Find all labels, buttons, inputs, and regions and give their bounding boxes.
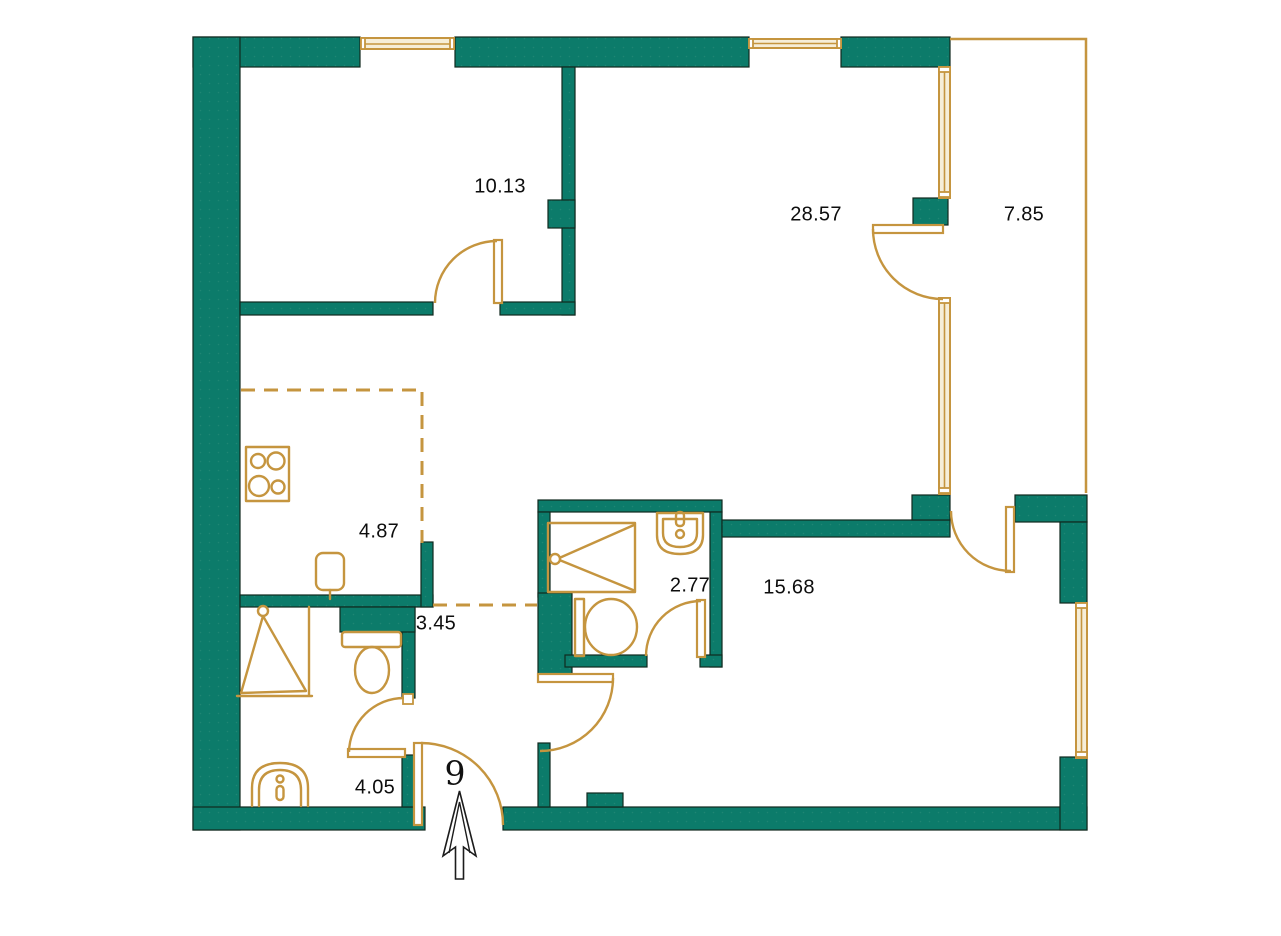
- door-shower-room: [348, 694, 413, 757]
- room-area-label-balcony: 7.85: [1004, 204, 1044, 227]
- floor-plan-canvas: [0, 0, 1281, 936]
- window-hall: [1076, 603, 1087, 758]
- toilet-icon: [342, 632, 401, 693]
- glass-partition-balcony-upper: [939, 67, 950, 198]
- toilet-icon: [575, 599, 637, 656]
- balcony-outline: [950, 39, 1086, 493]
- window-bedroom: [361, 38, 454, 49]
- door-corridor-to-hall: [538, 674, 613, 751]
- room-area-label-bedroom: 10.13: [474, 176, 526, 199]
- shower-icon: [237, 606, 312, 696]
- room-area-label-kitchen: 4.87: [359, 521, 399, 544]
- walls: [193, 37, 1087, 830]
- door-bathroom: [646, 600, 705, 657]
- door-balcony: [873, 225, 943, 299]
- room-area-label-living-room: 28.57: [790, 204, 842, 227]
- window-living-room: [749, 39, 841, 48]
- shower-icon: [548, 523, 635, 592]
- room-area-label-shower-room: 4.05: [355, 777, 395, 800]
- washbasin-icon: [657, 512, 703, 554]
- floor-plan: 10.13 28.57 7.85 4.87 3.45 2.77 15.68 4.…: [0, 0, 1281, 936]
- kitchen-sink-icon: [316, 553, 344, 599]
- glass-partition-balcony-lower: [939, 298, 950, 494]
- entrance-unit-number: 9: [445, 754, 466, 793]
- room-area-label-bathroom: 2.77: [670, 575, 710, 598]
- door-bedroom: [435, 240, 502, 303]
- room-area-label-corridor: 3.45: [416, 613, 456, 636]
- washbasin-icon: [252, 763, 308, 806]
- room-area-label-hall: 15.68: [763, 577, 815, 600]
- entrance-arrow-up-icon: [443, 791, 476, 879]
- kitchen-zone-dashed-boundary: [241, 390, 537, 605]
- stove-icon: [246, 447, 289, 501]
- door-living-to-hall: [951, 507, 1014, 572]
